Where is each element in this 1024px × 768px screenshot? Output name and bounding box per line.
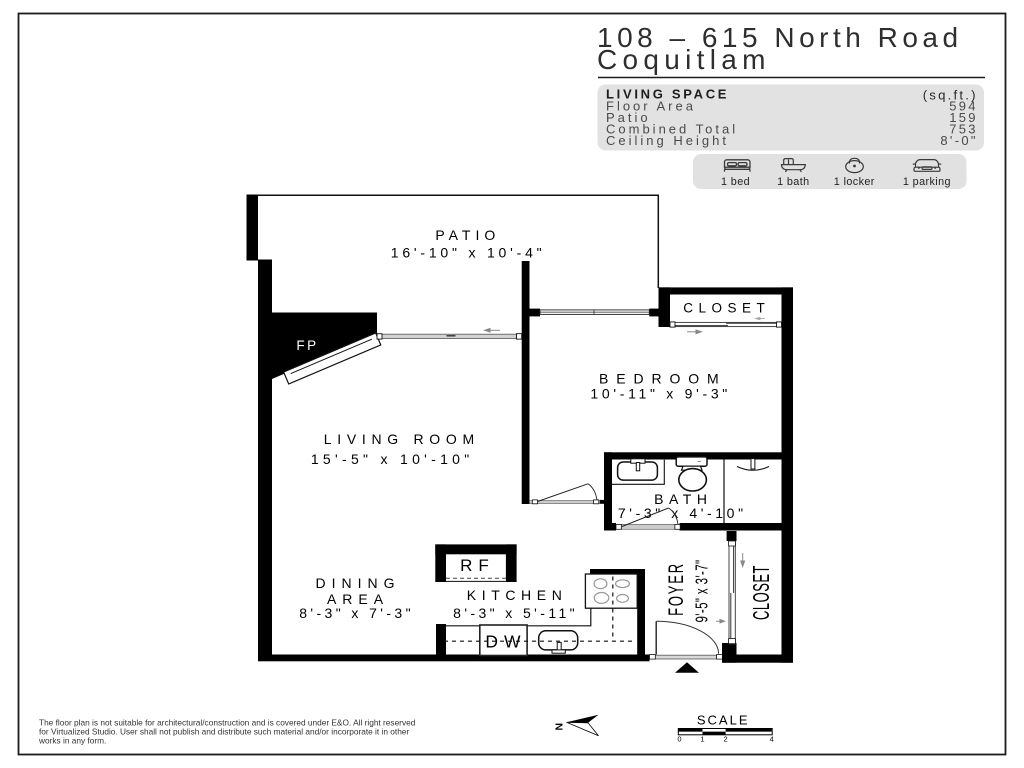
svg-text:FP: FP: [296, 338, 318, 353]
svg-text:CLOSET: CLOSET: [749, 565, 775, 620]
svg-text:8'-3" x 7'-3": 8'-3" x 7'-3": [299, 605, 414, 621]
svg-text:1 parking: 1 parking: [903, 176, 951, 188]
svg-text:Ceiling Height: Ceiling Height: [606, 133, 729, 148]
svg-text:PATIO: PATIO: [435, 227, 500, 243]
svg-text:2: 2: [724, 735, 728, 744]
svg-text:8'-0": 8'-0": [940, 133, 977, 148]
svg-text:Coquitlam: Coquitlam: [597, 44, 771, 75]
svg-text:LIVING ROOM: LIVING ROOM: [324, 431, 480, 447]
svg-text:4: 4: [770, 735, 774, 744]
svg-text:N: N: [554, 723, 566, 731]
svg-text:9'-5" x 3'-7": 9'-5" x 3'-7": [694, 559, 713, 622]
svg-text:CLOSET: CLOSET: [683, 300, 770, 315]
svg-text:works in any form.: works in any form.: [38, 735, 106, 745]
svg-text:10'-11" x 9'-3": 10'-11" x 9'-3": [590, 385, 731, 401]
svg-text:15'-5" x 10'-10": 15'-5" x 10'-10": [311, 451, 474, 467]
svg-text:BEDROOM: BEDROOM: [599, 370, 727, 386]
svg-text:7'-3" x 4'-10": 7'-3" x 4'-10": [618, 505, 747, 521]
svg-text:16'-10" x 10'-4": 16'-10" x 10'-4": [391, 245, 546, 261]
svg-text:FOYER: FOYER: [664, 562, 688, 616]
svg-text:0: 0: [677, 735, 681, 744]
svg-text:RF: RF: [460, 556, 495, 575]
svg-text:DW: DW: [485, 632, 526, 652]
svg-text:1 bath: 1 bath: [777, 176, 809, 188]
svg-text:DINING: DINING: [316, 575, 401, 591]
svg-text:8'-3" x 5'-11": 8'-3" x 5'-11": [453, 605, 578, 621]
svg-text:1: 1: [700, 735, 704, 744]
svg-text:KITCHEN: KITCHEN: [467, 587, 568, 603]
svg-text:SCALE: SCALE: [697, 713, 750, 728]
svg-text:1 bed: 1 bed: [721, 176, 750, 188]
svg-text:1 locker: 1 locker: [834, 176, 875, 188]
